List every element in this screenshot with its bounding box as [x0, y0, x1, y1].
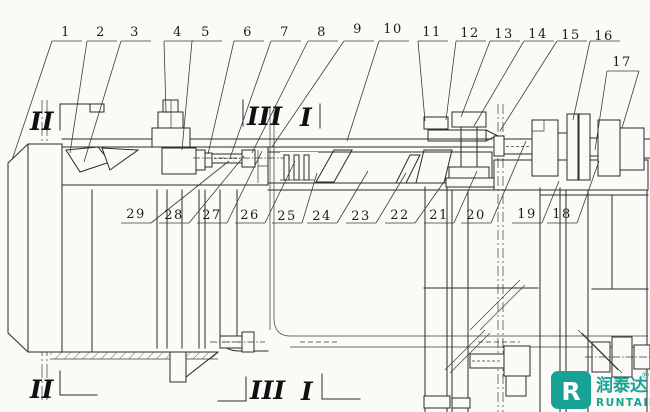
logo-registered-mark: ®: [641, 371, 650, 381]
logo-chinese-name: 润泰达: [596, 375, 647, 396]
section-I-bottom: I: [300, 377, 314, 406]
callout-8: 8: [317, 25, 327, 40]
mid-callout-numbers: 29 28 27 26 25 24 23 22 21 20 19 18: [126, 207, 572, 224]
callout-29: 29: [126, 207, 146, 222]
section-II-top: II: [29, 107, 55, 136]
callout-25: 25: [277, 209, 297, 224]
callout-24: 24: [312, 209, 332, 224]
runtaida-logo: R 润泰达 ® RUNTAIDA: [551, 371, 650, 409]
callout-14: 14: [528, 27, 548, 42]
callout-1: 1: [61, 25, 71, 40]
upper-bolt: [193, 150, 290, 170]
section-I-top: I: [299, 103, 313, 132]
technical-drawing-page: 1 2 3 4 5 6 7 8 9 10 11 12 13 14 15 16 1…: [0, 0, 650, 412]
callout-21: 21: [429, 208, 449, 223]
callout-4: 4: [173, 25, 183, 40]
callout-20: 20: [466, 208, 486, 223]
callout-17: 17: [612, 55, 632, 70]
section-II-bottom: II: [29, 375, 55, 404]
logo-latin-name: RUNTAIDA: [596, 397, 650, 409]
callout-23: 23: [351, 209, 371, 224]
callout-2: 2: [96, 25, 106, 40]
callout-16: 16: [594, 29, 614, 44]
callout-27: 27: [202, 208, 222, 223]
callout-22: 22: [390, 208, 410, 223]
callout-12: 12: [460, 26, 480, 41]
top-callout-numbers: 1 2 3 4 5 6 7 8 9 10 11 12 13 14 15 16 1…: [61, 22, 632, 70]
callout-28: 28: [164, 208, 184, 223]
packer-assembly-drawing: 1 2 3 4 5 6 7 8 9 10 11 12 13 14 15 16 1…: [0, 0, 650, 412]
callout-3: 3: [130, 25, 140, 40]
callout-7: 7: [280, 25, 290, 40]
logo-r-icon: R: [561, 377, 580, 406]
callout-9: 9: [353, 22, 363, 37]
section-markers: II III I II III I: [29, 100, 360, 406]
section-III-top: III: [246, 102, 283, 131]
callout-13: 13: [494, 27, 514, 42]
callout-11: 11: [422, 25, 442, 40]
callout-5: 5: [201, 25, 211, 40]
callout-18: 18: [552, 207, 572, 222]
callout-19: 19: [517, 207, 537, 222]
callout-26: 26: [240, 208, 260, 223]
callout-10: 10: [383, 22, 403, 37]
callout-6: 6: [243, 25, 253, 40]
section-III-bottom: III: [249, 376, 286, 405]
callout-15: 15: [561, 28, 581, 43]
